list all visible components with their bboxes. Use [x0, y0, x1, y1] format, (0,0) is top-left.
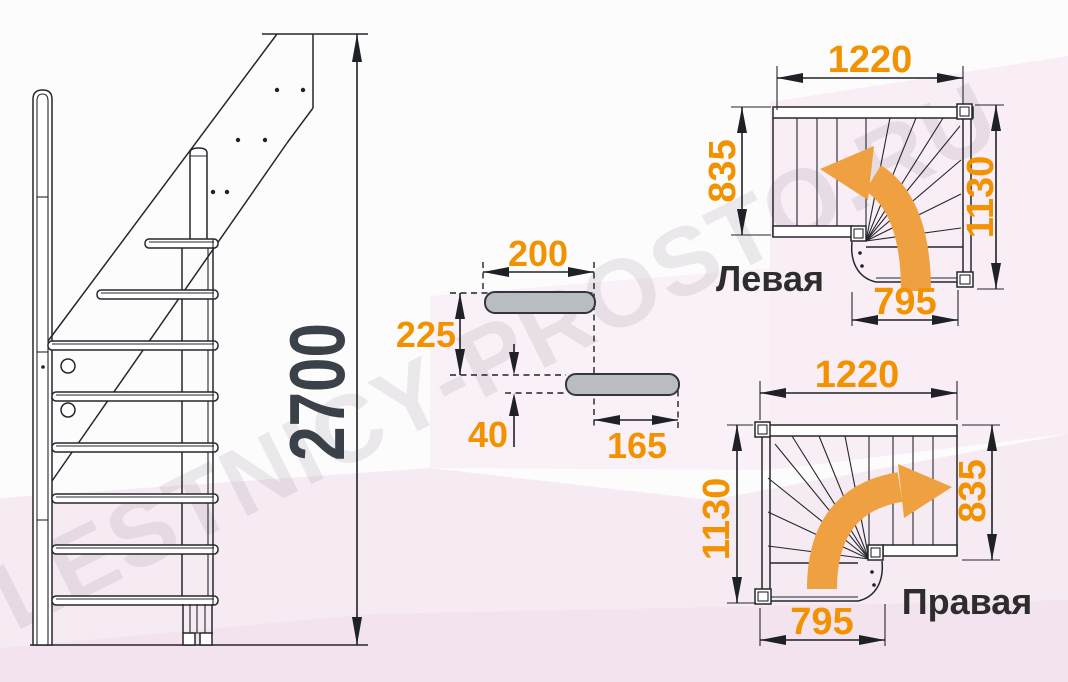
- plan-right-title: Правая: [902, 581, 1033, 622]
- bolt-hole: [61, 359, 75, 373]
- upper-step-section: [485, 292, 595, 313]
- plan-left-top-band: [773, 107, 973, 118]
- bolt-hole: [61, 403, 75, 417]
- dimension-label-1130: 1130: [696, 478, 738, 560]
- plan-left-title: Левая: [716, 258, 824, 299]
- dimension-label-2700: 2700: [273, 323, 360, 461]
- middle-post: [190, 148, 207, 240]
- dimension-label-1220: 1220: [828, 39, 913, 81]
- side-view-treads: [48, 239, 218, 605]
- dimension-label-835: 835: [702, 139, 744, 202]
- dimension-label-1130: 1130: [960, 156, 1002, 238]
- dimension-label-795: 795: [873, 281, 936, 323]
- dimension-label-225: 225: [396, 314, 456, 355]
- dimension-label-835: 835: [952, 459, 994, 522]
- dimension-label-1220: 1220: [815, 354, 900, 396]
- stair-diagram: LESTNICY-PROSTO.RU: [0, 0, 1068, 682]
- lower-step-section: [566, 374, 679, 395]
- dimension-label-200: 200: [508, 233, 568, 274]
- plan-right-top-band: [758, 425, 957, 436]
- dimension-label-795: 795: [790, 601, 853, 643]
- stair-drawing-canvas: LESTNICY-PROSTO.RU: [0, 0, 1068, 682]
- dimension-label-40: 40: [468, 414, 508, 455]
- dimension-label-165: 165: [607, 425, 667, 466]
